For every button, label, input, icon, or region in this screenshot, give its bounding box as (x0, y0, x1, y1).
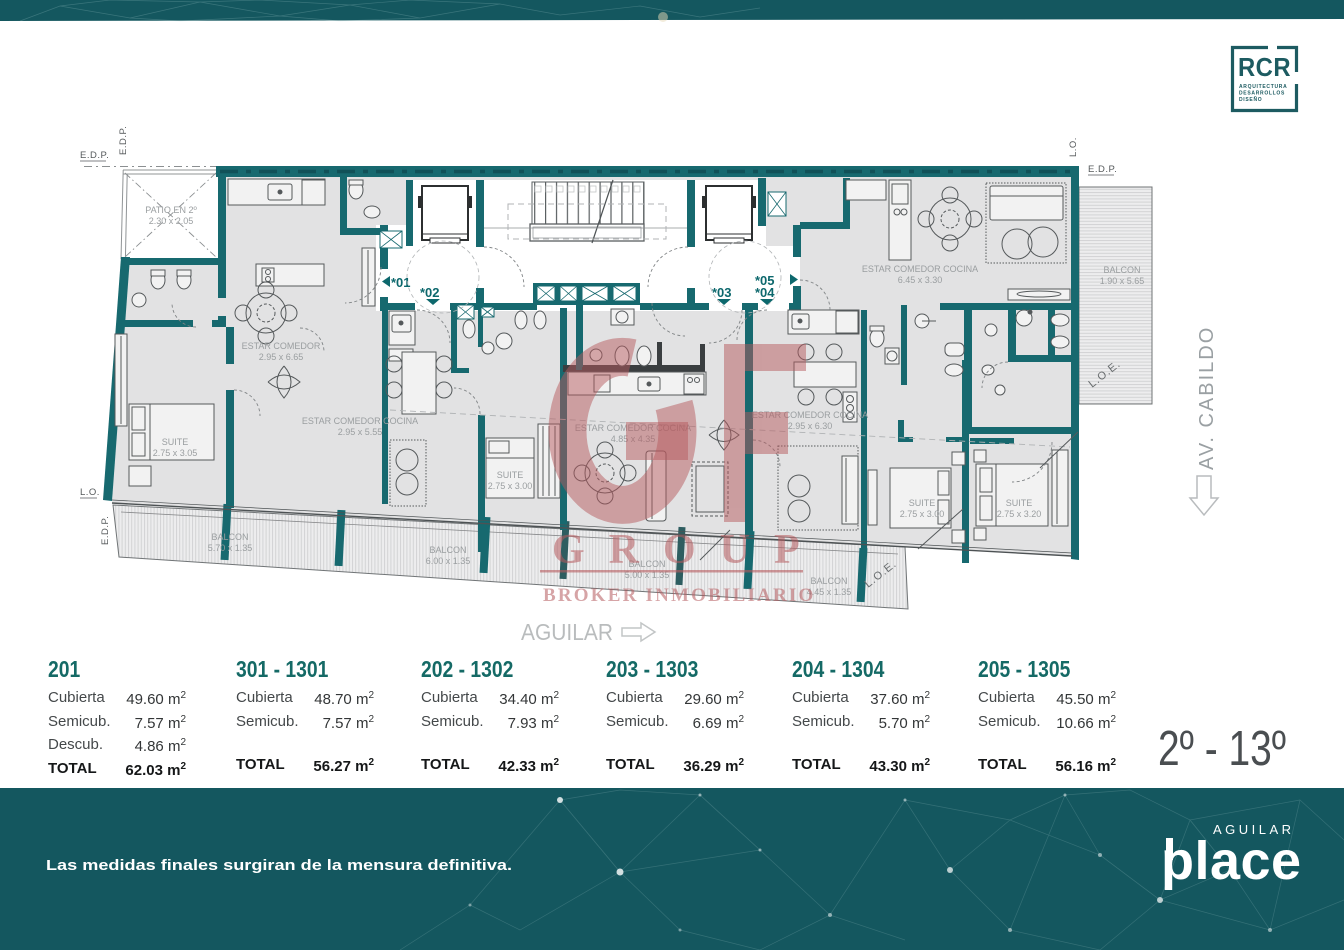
svg-text:AGUILAR: AGUILAR (521, 619, 613, 645)
svg-text:SUITE: SUITE (162, 437, 189, 447)
svg-text:BALCON: BALCON (211, 532, 248, 542)
svg-text:2.75 x 3.00: 2.75 x 3.00 (900, 509, 945, 519)
svg-text:2º - 13º: 2º - 13º (1158, 722, 1286, 776)
svg-text:E.D.P.: E.D.P. (80, 150, 109, 161)
svg-text:1.90 x 5.65: 1.90 x 5.65 (1100, 276, 1145, 286)
svg-text:DESARROLLOS: DESARROLLOS (1239, 91, 1285, 97)
svg-text:*02: *02 (420, 285, 440, 300)
svg-text:ARQUITECTURA: ARQUITECTURA (1239, 84, 1287, 90)
svg-text:GROUP: GROUP (552, 527, 824, 573)
svg-text:ESTAR COMEDOR COCINA: ESTAR COMEDOR COCINA (302, 416, 418, 426)
svg-text:RCR: RCR (1238, 52, 1291, 82)
svg-text:BALCON: BALCON (810, 576, 847, 586)
svg-text:SUITE: SUITE (909, 498, 936, 508)
svg-text:6.45 x 3.30: 6.45 x 3.30 (898, 275, 943, 285)
svg-text:2.30 x 2.05: 2.30 x 2.05 (149, 216, 194, 226)
svg-text:2.95 x 6.30: 2.95 x 6.30 (788, 421, 833, 431)
svg-text:2.75 x 3.05: 2.75 x 3.05 (153, 448, 198, 458)
svg-text:E.D.P.: E.D.P. (1088, 164, 1117, 175)
svg-text:SUITE: SUITE (1006, 498, 1033, 508)
svg-text:BALCON: BALCON (1103, 265, 1140, 275)
svg-text:2.95 x 5.55: 2.95 x 5.55 (338, 427, 383, 437)
svg-text:ESTAR COMEDOR: ESTAR COMEDOR (242, 341, 321, 351)
svg-text:AV. CABILDO: AV. CABILDO (1196, 326, 1218, 470)
svg-text:place: place (1161, 831, 1302, 891)
svg-text:BALCON: BALCON (429, 545, 466, 555)
svg-text:E.D.P.: E.D.P. (100, 516, 111, 545)
svg-text:L.O.: L.O. (1068, 137, 1079, 157)
svg-text:2.75 x 3.20: 2.75 x 3.20 (997, 509, 1042, 519)
svg-text:Las medidas finales surgiran d: Las medidas finales surgiran de la mensu… (46, 857, 512, 874)
svg-text:E.D.P.: E.D.P. (118, 126, 129, 155)
svg-text:*03: *03 (712, 285, 732, 300)
svg-text:2.95 x 6.65: 2.95 x 6.65 (259, 352, 304, 362)
svg-text:DISEÑO: DISEÑO (1239, 96, 1262, 103)
svg-text:*05: *05 (755, 273, 775, 288)
svg-text:L.O.: L.O. (80, 487, 100, 498)
svg-text:2.75 x 3.00: 2.75 x 3.00 (488, 481, 533, 491)
svg-text:BROKER INMOBILIARIO: BROKER INMOBILIARIO (543, 585, 815, 606)
svg-text:5.70 x 1.35: 5.70 x 1.35 (208, 543, 253, 553)
svg-text:ESTAR COMEDOR COCINA: ESTAR COMEDOR COCINA (862, 264, 978, 274)
svg-text:6.00 x 1.35: 6.00 x 1.35 (426, 556, 471, 566)
svg-text:SUITE: SUITE (497, 470, 524, 480)
svg-text:PATIO EN 2º: PATIO EN 2º (145, 205, 197, 215)
